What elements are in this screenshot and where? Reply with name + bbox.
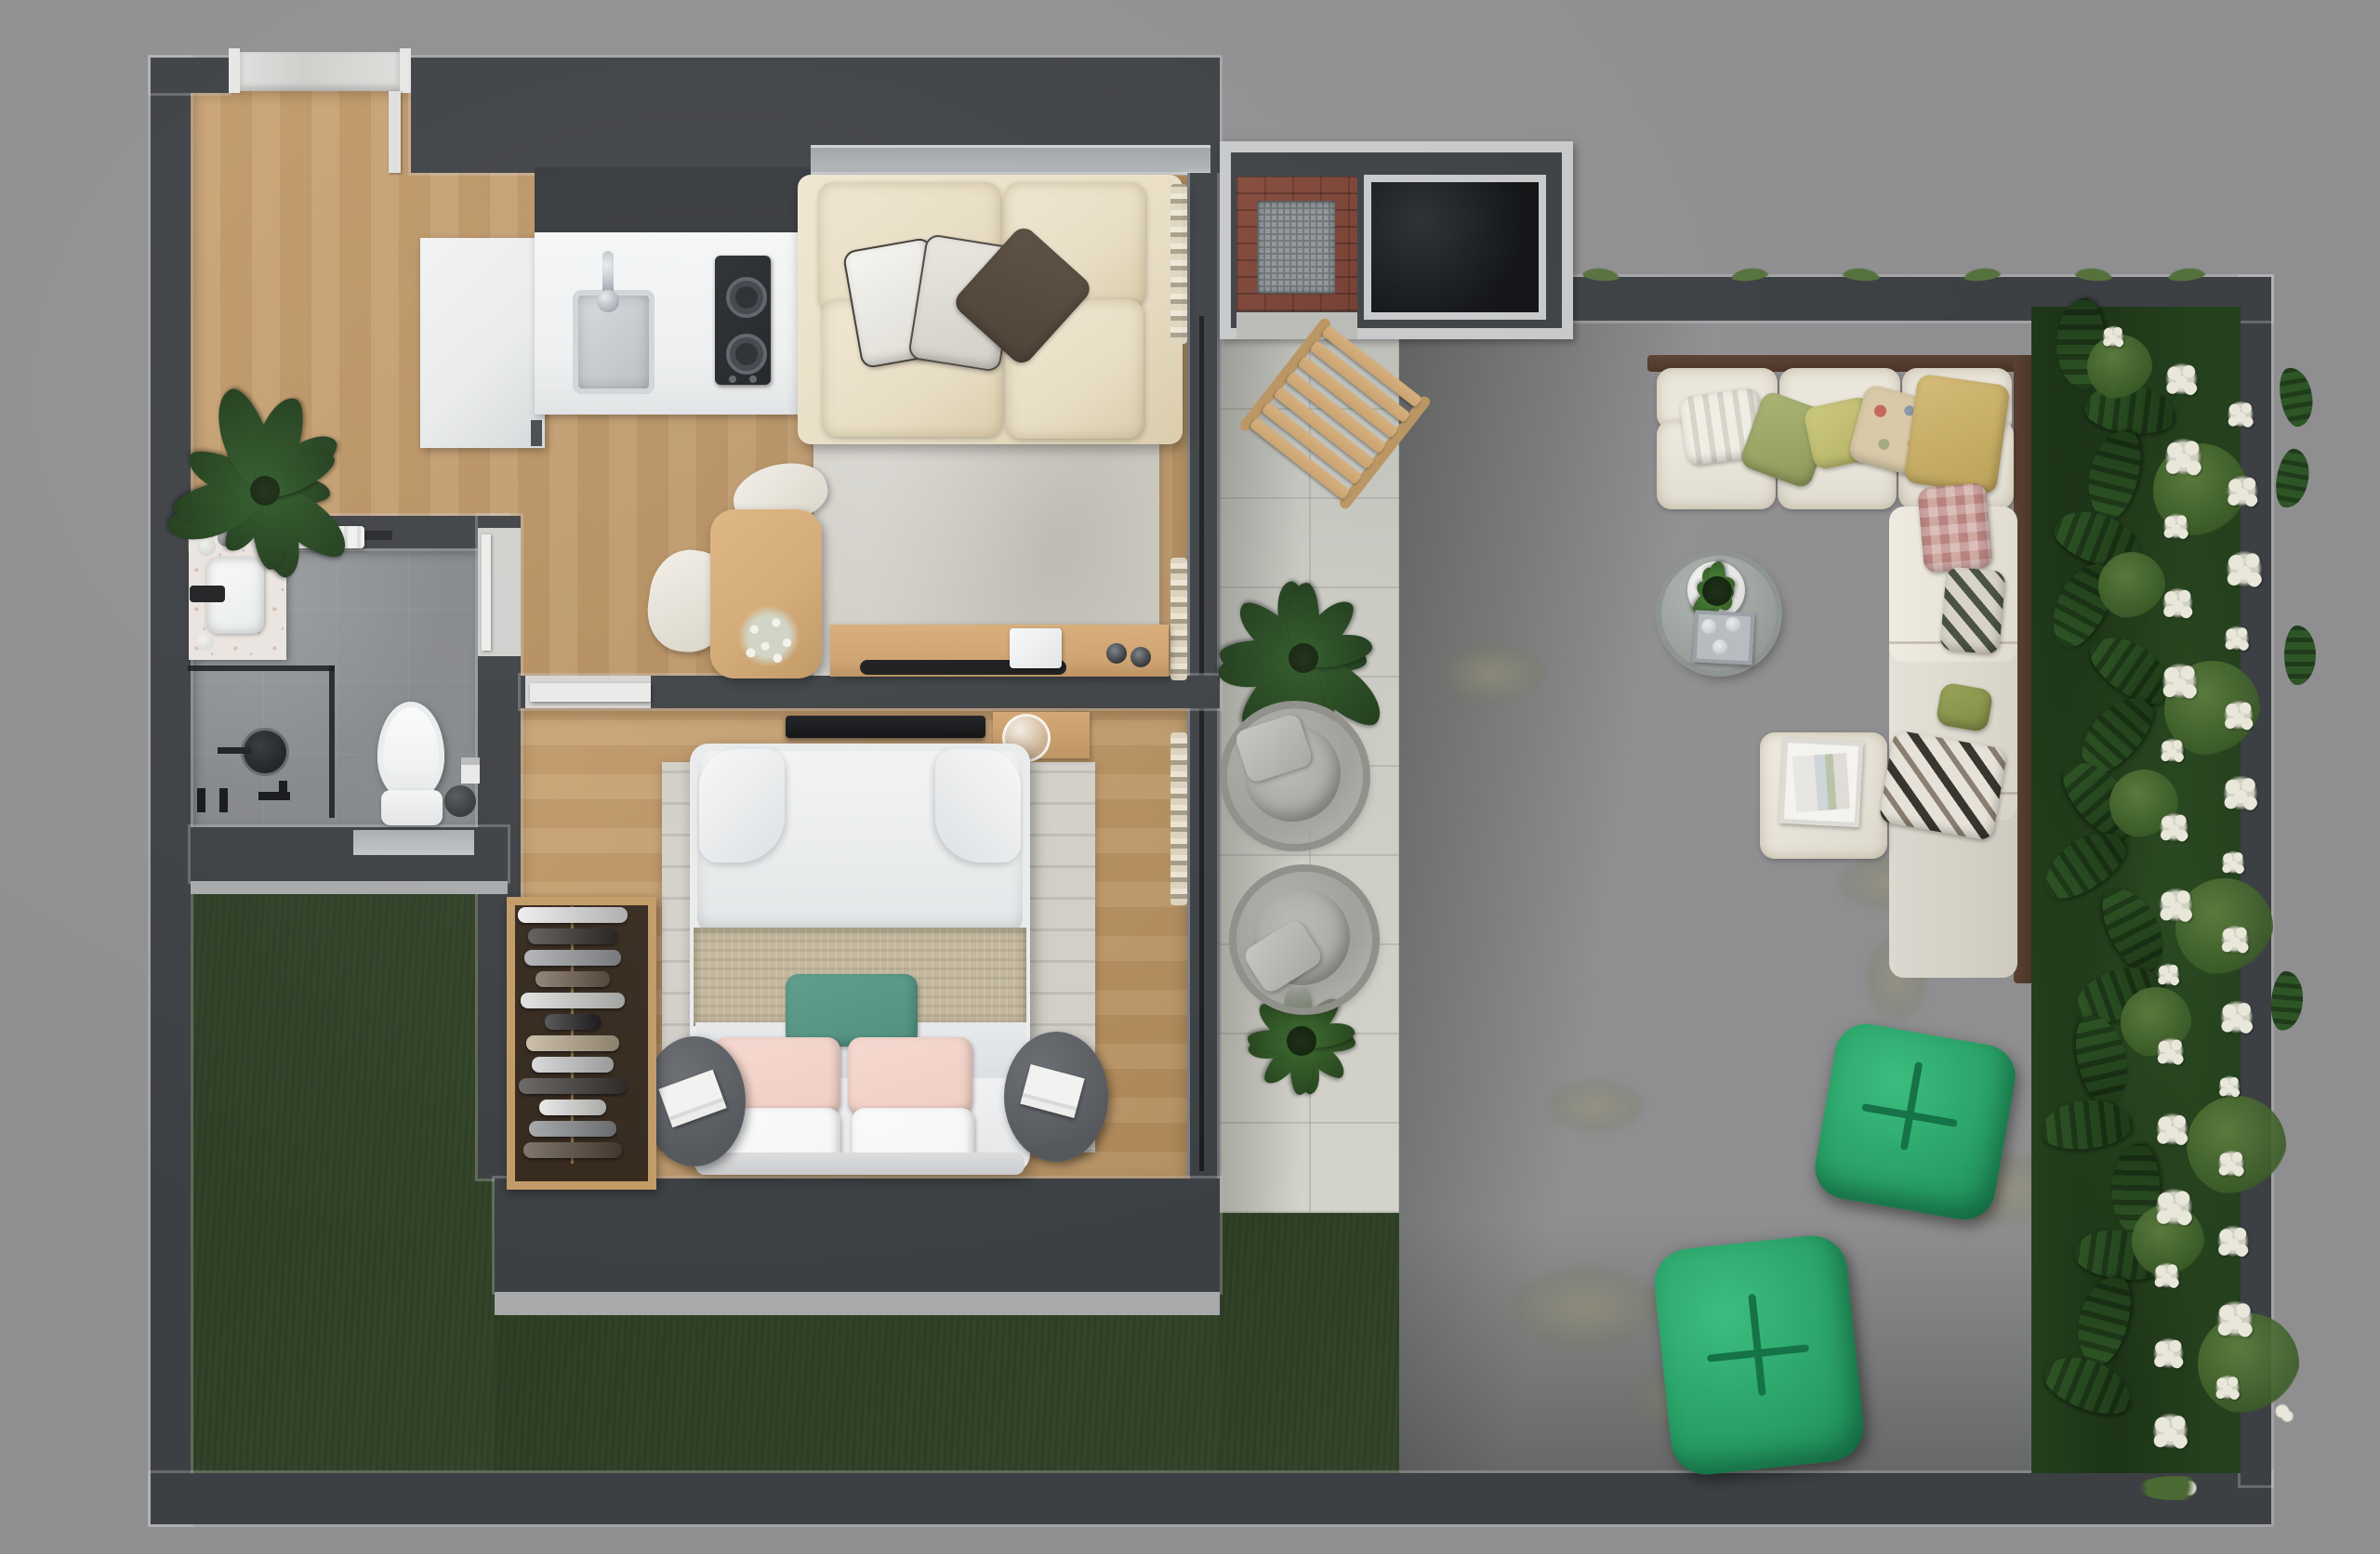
kitchen-niche-wall bbox=[535, 167, 811, 234]
wardrobe-garment bbox=[523, 1142, 622, 1158]
shower-mixer-1 bbox=[197, 788, 205, 812]
bathroom-south-window bbox=[353, 830, 474, 855]
bathroom-faucet bbox=[190, 586, 225, 602]
white-flower-cluster bbox=[2150, 1413, 2190, 1453]
flower-hedge bbox=[2031, 307, 2241, 1473]
lawn-patio-south bbox=[1220, 1213, 1399, 1473]
cooktop-knob-2 bbox=[749, 375, 757, 383]
wall-top-left bbox=[151, 58, 229, 93]
sink-faucet-head bbox=[597, 290, 619, 312]
white-flower-cluster bbox=[2152, 1262, 2181, 1291]
bed-pillow-pink-2 bbox=[848, 1037, 972, 1115]
lawn-worn-patch bbox=[1506, 1264, 1664, 1352]
lawn-south-shadow bbox=[495, 1315, 1220, 1473]
wall-bedroom-south-trim bbox=[495, 1292, 1220, 1315]
cup-2 bbox=[1130, 647, 1151, 667]
white-flower-cluster bbox=[2155, 1037, 2186, 1068]
shrub-clump bbox=[2098, 552, 2165, 619]
coffee-table-tray bbox=[1693, 610, 1755, 665]
overhanging-leaf bbox=[2272, 447, 2314, 511]
curtain-living-north bbox=[1170, 184, 1187, 344]
wall-bedroom-south bbox=[495, 1179, 1220, 1292]
cooktop-burner-2 bbox=[726, 334, 767, 375]
floor-plan-scene: Top-down 3D architectural floor plan ren… bbox=[0, 0, 2380, 1554]
toilet-paper-holder bbox=[461, 757, 480, 784]
kitchen-cabinet bbox=[420, 238, 545, 448]
overhanging-leaf bbox=[2284, 626, 2316, 685]
cooktop-burner-1 bbox=[726, 277, 767, 318]
bed-footboard bbox=[695, 1152, 1025, 1175]
duvet-corner-right bbox=[935, 749, 1021, 863]
sliding-door-track bbox=[1199, 316, 1204, 1171]
wall-spill-shrub bbox=[2138, 1476, 2211, 1500]
bedroom-door-leaf bbox=[530, 683, 651, 702]
overhanging-leaf bbox=[2276, 365, 2318, 429]
bedroom-tv bbox=[786, 716, 985, 738]
soap-dish-1 bbox=[197, 537, 216, 556]
bed-pillow-teal bbox=[786, 974, 918, 1047]
shower-glass-vertical bbox=[329, 665, 335, 818]
wall-bottom bbox=[151, 1473, 2271, 1524]
wardrobe-garment bbox=[519, 1078, 627, 1094]
plant-center bbox=[250, 476, 280, 506]
white-flower-cluster bbox=[2215, 1300, 2255, 1341]
white-flower-cluster bbox=[2153, 1188, 2195, 1230]
waste-bin bbox=[444, 785, 476, 817]
lawn-worn-patch bbox=[1543, 1078, 1646, 1134]
outdoor-pillow-olive bbox=[1935, 681, 1993, 732]
white-flower-cluster bbox=[2154, 1113, 2190, 1149]
entry-door-leaf bbox=[389, 91, 401, 173]
tray-glass-1 bbox=[1701, 619, 1716, 634]
bean-bag-pouf-1 bbox=[1810, 1019, 2020, 1224]
wardrobe-garment bbox=[524, 950, 621, 966]
toilet-tank bbox=[381, 790, 443, 825]
cabinet-handle bbox=[531, 420, 542, 446]
black-counter bbox=[1371, 182, 1539, 312]
stray-flower bbox=[2274, 1402, 2294, 1426]
outdoor-pillow-diamond bbox=[1939, 566, 2006, 654]
laptop bbox=[1010, 628, 1062, 668]
wardrobe-garment bbox=[518, 907, 628, 923]
bathroom-door-leaf bbox=[482, 534, 491, 651]
barbecue-grill-grate bbox=[1257, 201, 1335, 294]
shower-glass-horizontal bbox=[188, 665, 335, 671]
ottoman-magazine bbox=[1792, 753, 1850, 812]
wardrobe-garment bbox=[526, 1035, 619, 1051]
outdoor-pillow-mustard bbox=[1903, 374, 2010, 495]
lawn-worn-patch bbox=[1436, 641, 1548, 706]
overhanging-leaf bbox=[2268, 970, 2305, 1033]
wardrobe-garment bbox=[529, 1121, 616, 1137]
cooktop-knob-1 bbox=[729, 375, 736, 383]
tray-glass-2 bbox=[1725, 617, 1740, 632]
white-flower-cluster bbox=[2156, 963, 2181, 988]
shrub-clump bbox=[2175, 878, 2273, 976]
plant-center bbox=[1287, 1026, 1316, 1056]
shower-arm bbox=[218, 747, 251, 754]
white-flower-cluster bbox=[2163, 362, 2200, 399]
cup-1 bbox=[1106, 643, 1127, 664]
wardrobe-garment bbox=[545, 1014, 601, 1030]
outdoor-pillow-patchwork bbox=[1917, 482, 1993, 573]
entry-door-jamb-right bbox=[400, 48, 411, 93]
white-flower-cluster bbox=[2161, 587, 2195, 622]
white-flower-cluster bbox=[2226, 401, 2255, 430]
plant-center bbox=[1289, 643, 1318, 673]
white-flower-cluster bbox=[2160, 663, 2200, 703]
white-flower-cluster bbox=[2218, 1000, 2255, 1037]
living-window-sill bbox=[811, 145, 1210, 175]
outdoor-pillow-chevron bbox=[1878, 730, 2007, 841]
white-flower-cluster bbox=[2157, 888, 2195, 926]
tray-glass-3 bbox=[1712, 639, 1727, 654]
white-flower-cluster bbox=[2217, 1075, 2241, 1100]
shower-mixer-2 bbox=[219, 788, 228, 812]
duvet-corner-left bbox=[699, 749, 785, 863]
entry-door-jamb-left bbox=[229, 48, 240, 93]
white-flower-cluster bbox=[2159, 738, 2186, 765]
shrub-clump bbox=[2187, 1096, 2286, 1195]
white-flower-cluster bbox=[2215, 1225, 2251, 1260]
white-flower-cluster bbox=[2223, 626, 2251, 653]
wardrobe-garment bbox=[535, 971, 610, 987]
white-flower-cluster bbox=[2162, 438, 2204, 480]
wardrobe-garment bbox=[521, 993, 625, 1008]
soap-dish-3 bbox=[195, 632, 214, 651]
white-flower-cluster bbox=[2224, 550, 2265, 591]
monstera-leaf bbox=[2080, 424, 2149, 524]
white-flower-cluster bbox=[2162, 513, 2190, 542]
wall-bathroom-south-trim bbox=[191, 881, 508, 894]
monstera-leaf bbox=[2069, 1270, 2139, 1370]
curtain-living-south bbox=[1170, 558, 1187, 680]
wardrobe-garment bbox=[539, 1100, 606, 1115]
shower-mixer-4 bbox=[279, 781, 287, 800]
curtain-bedroom bbox=[1170, 732, 1187, 905]
white-flower-cluster bbox=[2221, 775, 2260, 814]
wall-left bbox=[151, 58, 191, 1524]
wardrobe-garment bbox=[528, 928, 617, 944]
table-flower-bouquet bbox=[733, 606, 805, 673]
plant-center bbox=[1702, 576, 1732, 606]
white-flower-cluster bbox=[2158, 812, 2190, 845]
monstera-leaf bbox=[2039, 1096, 2135, 1153]
white-flower-cluster bbox=[2220, 850, 2246, 876]
white-flower-cluster bbox=[2101, 325, 2125, 349]
lawn-west-shadow bbox=[191, 894, 495, 1473]
entry-marble-threshold bbox=[240, 52, 400, 91]
wardrobe-garment bbox=[532, 1057, 614, 1073]
white-flower-cluster bbox=[2151, 1337, 2186, 1372]
